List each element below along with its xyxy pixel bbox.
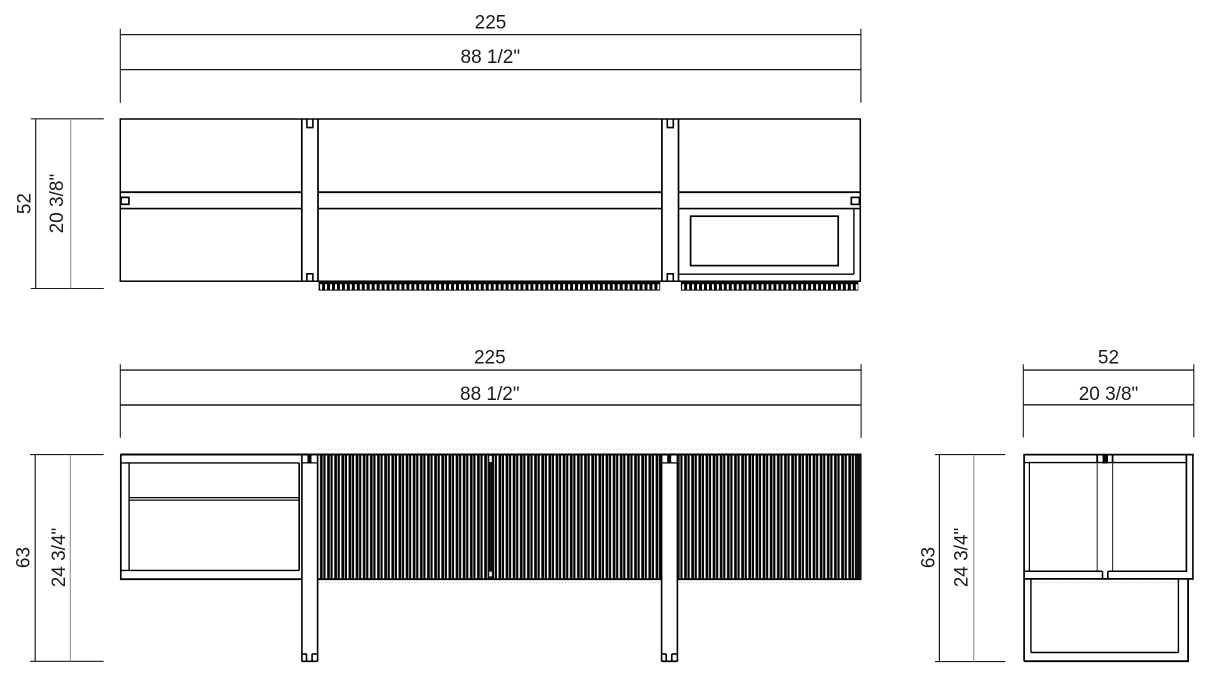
svg-text:20 3/8": 20 3/8" (47, 174, 68, 234)
svg-text:52: 52 (14, 193, 35, 214)
svg-text:63: 63 (14, 547, 35, 568)
svg-text:225: 225 (475, 12, 507, 33)
svg-text:225: 225 (474, 348, 506, 369)
svg-text:52: 52 (1098, 348, 1119, 369)
svg-text:20 3/8": 20 3/8" (1079, 384, 1139, 405)
svg-text:24 3/4": 24 3/4" (951, 528, 972, 588)
svg-text:88 1/2": 88 1/2" (461, 47, 521, 68)
svg-text:88 1/2": 88 1/2" (460, 384, 520, 405)
svg-text:24 3/4": 24 3/4" (49, 528, 70, 588)
svg-text:63: 63 (918, 547, 939, 568)
